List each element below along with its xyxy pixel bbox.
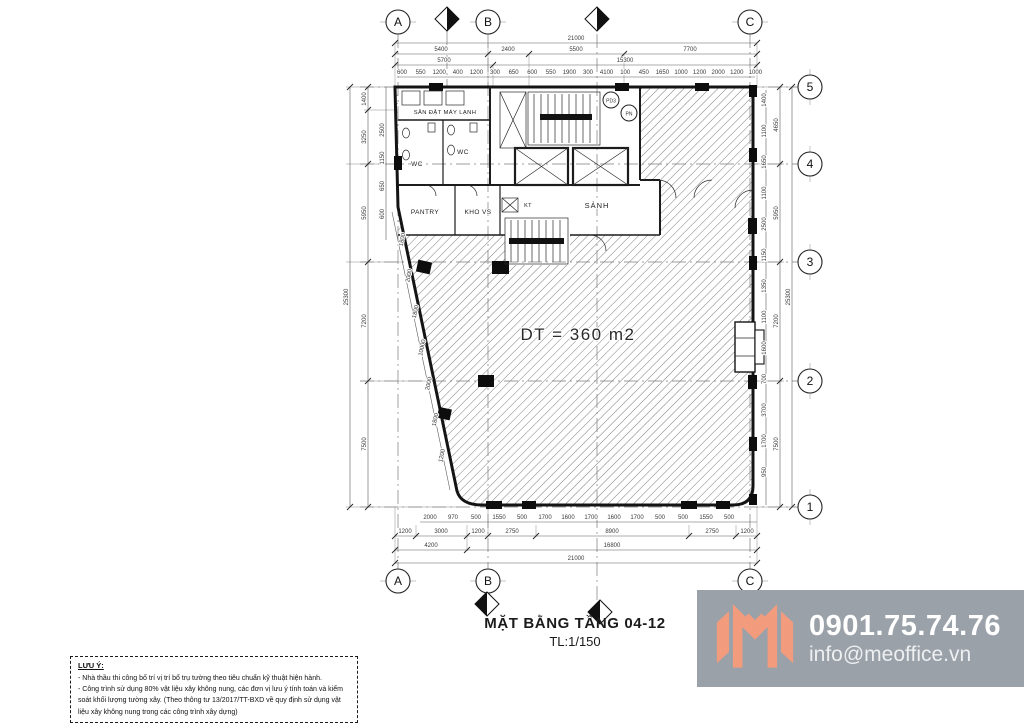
dim-left-total: 25300 — [344, 288, 350, 305]
area-label: DT = 360 m2 — [521, 325, 636, 344]
svg-text:4100: 4100 — [600, 70, 614, 76]
dim-left-span: 5950 — [362, 206, 368, 220]
room-label-storage: KHO VS — [465, 209, 492, 216]
dim-bottom-sub: 1200 — [740, 529, 754, 535]
svg-text:600: 600 — [380, 208, 386, 219]
grid-bubble-b: B — [484, 15, 492, 29]
svg-text:1400: 1400 — [762, 93, 768, 107]
svg-text:100: 100 — [620, 70, 631, 76]
notes-heading: LƯU Ý: — [78, 660, 350, 672]
grid-bubble-2: 2 — [807, 374, 814, 388]
notes-box: LƯU Ý: - Nhà thầu thi công bố trí vị trí… — [70, 656, 358, 723]
grid-bubbles-right: 5 4 3 2 1 — [798, 69, 822, 525]
shaft-pn-label: PN — [626, 112, 633, 118]
dim-bottom-span: 4200 — [424, 543, 438, 549]
ac-units — [402, 91, 464, 105]
svg-text:550: 550 — [546, 70, 557, 76]
svg-text:2000: 2000 — [423, 515, 437, 521]
room-label-kt: KT — [524, 203, 532, 209]
contact-info: 0901.75.74.76 info@meoffice.vn — [809, 611, 1001, 667]
dim-top-span: 5500 — [569, 47, 583, 53]
svg-text:1200: 1200 — [438, 448, 447, 463]
notes-line: - Nhà thầu thi công bố trí vị trí bổ trụ… — [78, 673, 350, 684]
meoffice-logo — [709, 600, 801, 678]
dim-top-sub: 5700 — [437, 58, 451, 64]
phone-number: 0901.75.74.76 — [809, 611, 1001, 643]
dim-top-span: 2400 — [501, 47, 515, 53]
dim-bottom-sub: 2750 — [705, 529, 719, 535]
svg-text:1650: 1650 — [656, 70, 670, 76]
floor-plan-page: 21000 5400 2400 5500 7700 5700 15300 120… — [0, 0, 1024, 723]
dim-top-total: 21000 — [568, 36, 585, 42]
svg-text:600: 600 — [397, 70, 408, 76]
shaft-pd3-tag: PD3 — [603, 92, 619, 108]
facade-notch — [735, 322, 764, 372]
svg-text:700: 700 — [762, 373, 768, 384]
dim-right-span: 5950 — [774, 206, 780, 220]
drawing-scale: TL:1/150 — [430, 634, 720, 649]
svg-text:1700: 1700 — [630, 515, 644, 521]
svg-text:950: 950 — [762, 466, 768, 477]
room-label-wc: WC — [411, 161, 423, 168]
svg-text:300: 300 — [490, 70, 501, 76]
svg-text:1100: 1100 — [762, 186, 768, 200]
dim-bottom-detail-row: 2000970500155050017001600170016001700500… — [423, 515, 734, 521]
grid-bubble-c: C — [746, 574, 755, 588]
email-address: info@meoffice.vn — [809, 643, 1001, 666]
svg-text:1200: 1200 — [730, 70, 744, 76]
svg-text:3700: 3700 — [762, 403, 768, 417]
grid-bubble-5: 5 — [807, 80, 814, 94]
dim-right-total: 25300 — [786, 288, 792, 305]
shaft-kt — [502, 198, 518, 212]
svg-text:1200: 1200 — [693, 70, 707, 76]
svg-text:500: 500 — [724, 515, 735, 521]
dim-left-detail-chain: 25001150650600 — [380, 123, 386, 219]
svg-text:1150: 1150 — [380, 151, 386, 165]
dim-right-span: 7500 — [774, 437, 780, 451]
svg-text:1550: 1550 — [492, 515, 506, 521]
dim-bottom-sub: 8900 — [605, 529, 619, 535]
svg-text:2500: 2500 — [380, 123, 386, 137]
notes-line: - Công trình sử dụng 80% vật liệu xây kh… — [78, 684, 350, 718]
shaft-pn-tag: PN — [621, 105, 637, 121]
svg-text:400: 400 — [453, 70, 464, 76]
svg-text:650: 650 — [509, 70, 520, 76]
room-label-wc: WC — [457, 149, 469, 156]
svg-text:1700: 1700 — [762, 434, 768, 448]
svg-text:500: 500 — [655, 515, 666, 521]
svg-text:1650: 1650 — [762, 155, 768, 169]
dim-top-detail-row: 6005501200400120030065060055019003004100… — [397, 70, 763, 76]
elevators — [515, 148, 628, 185]
svg-text:1200: 1200 — [470, 70, 484, 76]
svg-text:1700: 1700 — [584, 515, 598, 521]
dim-top-sub: 15300 — [617, 58, 634, 64]
room-label-ac-yard: SÂN ĐẶT MÁY LẠNH — [414, 109, 477, 116]
svg-text:1000: 1000 — [674, 70, 688, 76]
shaft-pd3-label: PD3 — [606, 99, 616, 105]
svg-text:2000: 2000 — [712, 70, 726, 76]
grid-bubble-b: B — [484, 574, 492, 588]
dim-left-span: 7200 — [362, 314, 368, 328]
svg-text:500: 500 — [678, 515, 689, 521]
dim-top-span: 5400 — [434, 47, 448, 53]
shaft-stair-side — [500, 92, 526, 148]
svg-text:1200: 1200 — [433, 70, 447, 76]
svg-text:300: 300 — [583, 70, 594, 76]
svg-text:500: 500 — [517, 515, 528, 521]
svg-text:970: 970 — [448, 515, 459, 521]
svg-text:600: 600 — [527, 70, 538, 76]
svg-text:1600: 1600 — [607, 515, 621, 521]
grid-bubble-a: A — [394, 15, 402, 29]
dim-left-span: 1400 — [362, 92, 368, 106]
svg-text:1900: 1900 — [563, 70, 577, 76]
svg-text:450: 450 — [639, 70, 650, 76]
grid-bubble-a: A — [394, 574, 402, 588]
dim-bottom-sub: 2750 — [505, 529, 519, 535]
dim-bottom-sub: 1200 — [398, 529, 412, 535]
svg-text:1550: 1550 — [699, 515, 713, 521]
svg-text:1150: 1150 — [762, 248, 768, 262]
svg-text:1000: 1000 — [749, 70, 763, 76]
dim-right-detail-chain: 1400110016501100250011501350110016007003… — [762, 93, 768, 477]
grid-bubble-3: 3 — [807, 255, 814, 269]
branding-banner: 0901.75.74.76 info@meoffice.vn — [697, 590, 1024, 687]
dim-bottom-sub: 3000 — [434, 529, 448, 535]
drawing-title: MẶT BẰNG TẦNG 04-12 — [430, 615, 720, 632]
svg-text:1700: 1700 — [538, 515, 552, 521]
dim-bottom-total: 21000 — [568, 556, 585, 562]
svg-text:1100: 1100 — [762, 310, 768, 324]
svg-text:2500: 2500 — [762, 217, 768, 231]
stair-main — [528, 92, 600, 145]
grid-bubble-1: 1 — [807, 500, 814, 514]
svg-text:550: 550 — [416, 70, 427, 76]
svg-text:1600: 1600 — [561, 515, 575, 521]
stair-secondary — [505, 218, 568, 264]
room-label-lobby: SẢNH — [585, 201, 610, 210]
dim-left-span: 3250 — [362, 130, 368, 144]
svg-text:1350: 1350 — [762, 279, 768, 293]
svg-text:1800: 1800 — [432, 412, 441, 427]
svg-text:1600: 1600 — [762, 341, 768, 355]
svg-text:500: 500 — [471, 515, 482, 521]
room-label-pantry: PANTRY — [411, 209, 439, 216]
dim-top-span: 7700 — [683, 47, 697, 53]
grid-bubble-4: 4 — [807, 157, 814, 171]
title-block: MẶT BẰNG TẦNG 04-12 TL:1/150 — [430, 615, 720, 649]
dim-bottom-sub: 1200 — [471, 529, 485, 535]
grid-bubble-c: C — [746, 15, 755, 29]
svg-text:1100: 1100 — [762, 124, 768, 138]
dim-right-span: 7200 — [774, 314, 780, 328]
svg-text:650: 650 — [380, 180, 386, 191]
dim-bottom-span: 16800 — [604, 543, 621, 549]
dim-left-span: 7500 — [362, 437, 368, 451]
dim-right-span: 4650 — [774, 118, 780, 132]
